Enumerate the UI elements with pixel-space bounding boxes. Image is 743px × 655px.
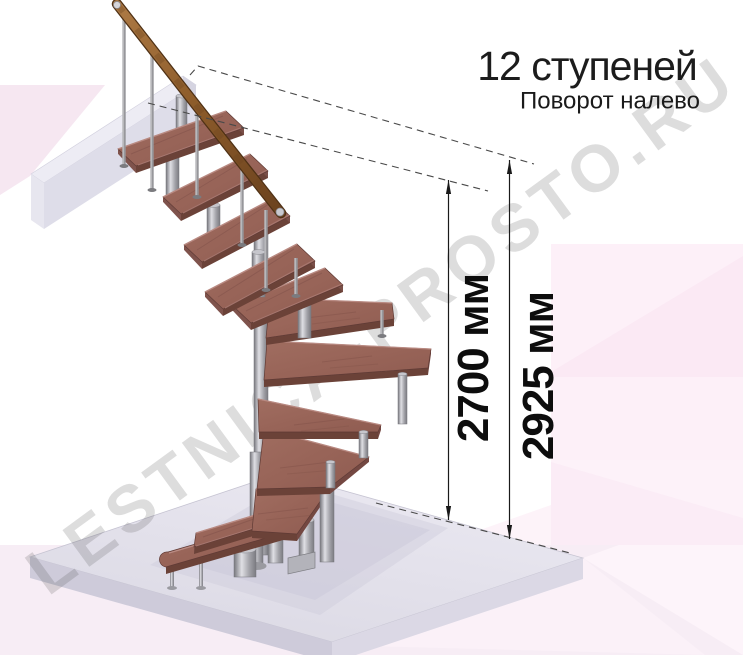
svg-text:2925 мм: 2925 мм <box>514 292 563 460</box>
svg-text:Поворот налево: Поворот налево <box>520 88 700 115</box>
svg-text:12 ступеней: 12 ступеней <box>477 43 697 89</box>
svg-text:2700 мм: 2700 мм <box>449 274 498 442</box>
